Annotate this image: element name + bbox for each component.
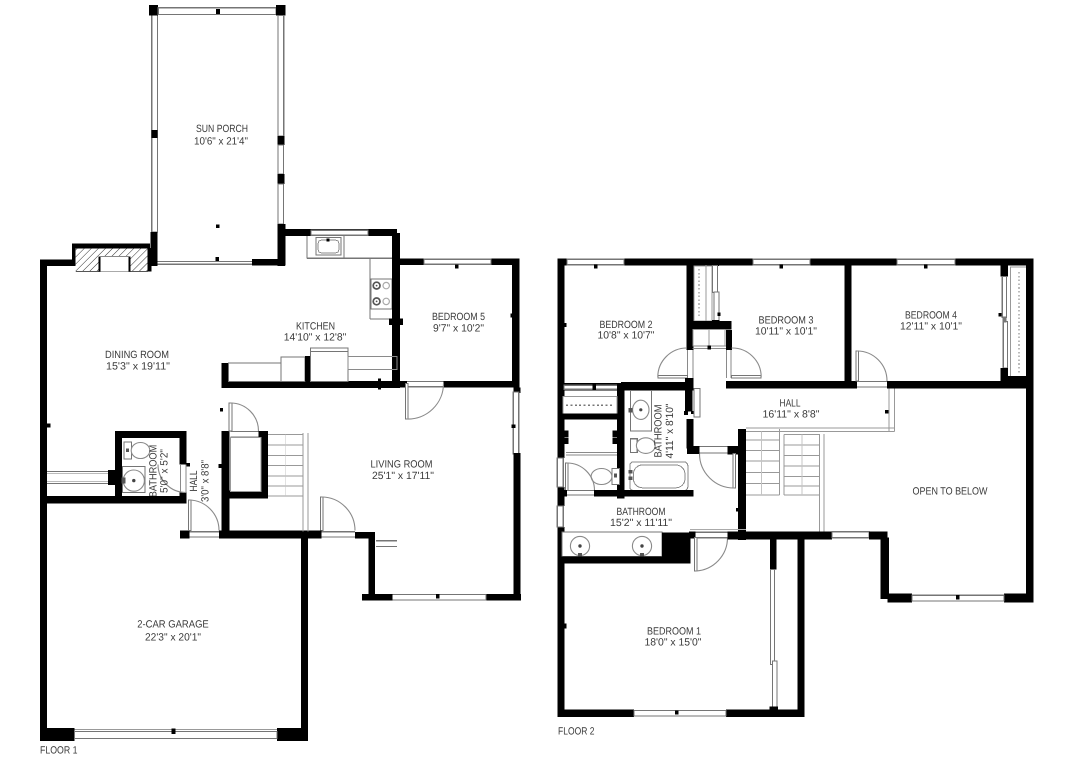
svg-text:22'3" x 20'1": 22'3" x 20'1" <box>145 632 201 644</box>
svg-text:14'10" x 12'8": 14'10" x 12'8" <box>284 332 347 344</box>
svg-text:KITCHEN: KITCHEN <box>296 320 335 332</box>
svg-text:15'3" x 19'11": 15'3" x 19'11" <box>106 360 170 372</box>
svg-text:DINING ROOM: DINING ROOM <box>105 349 169 361</box>
svg-text:5'0" x 5'2": 5'0" x 5'2" <box>159 449 171 493</box>
svg-text:10'11" x 10'1": 10'11" x 10'1" <box>755 326 817 338</box>
svg-text:FLOOR 2: FLOOR 2 <box>558 726 595 738</box>
svg-text:BATHROOM: BATHROOM <box>653 405 665 458</box>
svg-text:BEDROOM 5: BEDROOM 5 <box>432 311 485 323</box>
svg-text:OPEN TO BELOW: OPEN TO BELOW <box>913 486 988 498</box>
svg-text:HALL: HALL <box>188 470 200 491</box>
svg-text:2-CAR GARAGE: 2-CAR GARAGE <box>137 619 209 631</box>
svg-text:18'0" x 15'0": 18'0" x 15'0" <box>645 636 702 648</box>
svg-text:4'11" x 8'10": 4'11" x 8'10" <box>664 403 676 458</box>
svg-text:FLOOR 1: FLOOR 1 <box>40 745 78 757</box>
svg-text:3'0" x 8'8": 3'0" x 8'8" <box>200 460 212 502</box>
svg-text:15'2" x 11'11": 15'2" x 11'11" <box>610 517 672 529</box>
svg-text:LIVING ROOM: LIVING ROOM <box>371 459 433 471</box>
svg-text:HALL: HALL <box>780 398 801 410</box>
svg-text:SUN PORCH: SUN PORCH <box>196 123 248 135</box>
svg-text:BEDROOM 3: BEDROOM 3 <box>759 315 814 327</box>
svg-text:25'1" x 17'11": 25'1" x 17'11" <box>372 470 434 482</box>
svg-text:10'6" x 21'4": 10'6" x 21'4" <box>194 136 248 148</box>
svg-text:12'11" x 10'1": 12'11" x 10'1" <box>900 320 962 332</box>
svg-text:16'11" x 8'8": 16'11" x 8'8" <box>763 409 820 421</box>
svg-text:9'7" x 10'2": 9'7" x 10'2" <box>433 322 484 334</box>
svg-text:10'8" x 10'7": 10'8" x 10'7" <box>598 330 655 342</box>
